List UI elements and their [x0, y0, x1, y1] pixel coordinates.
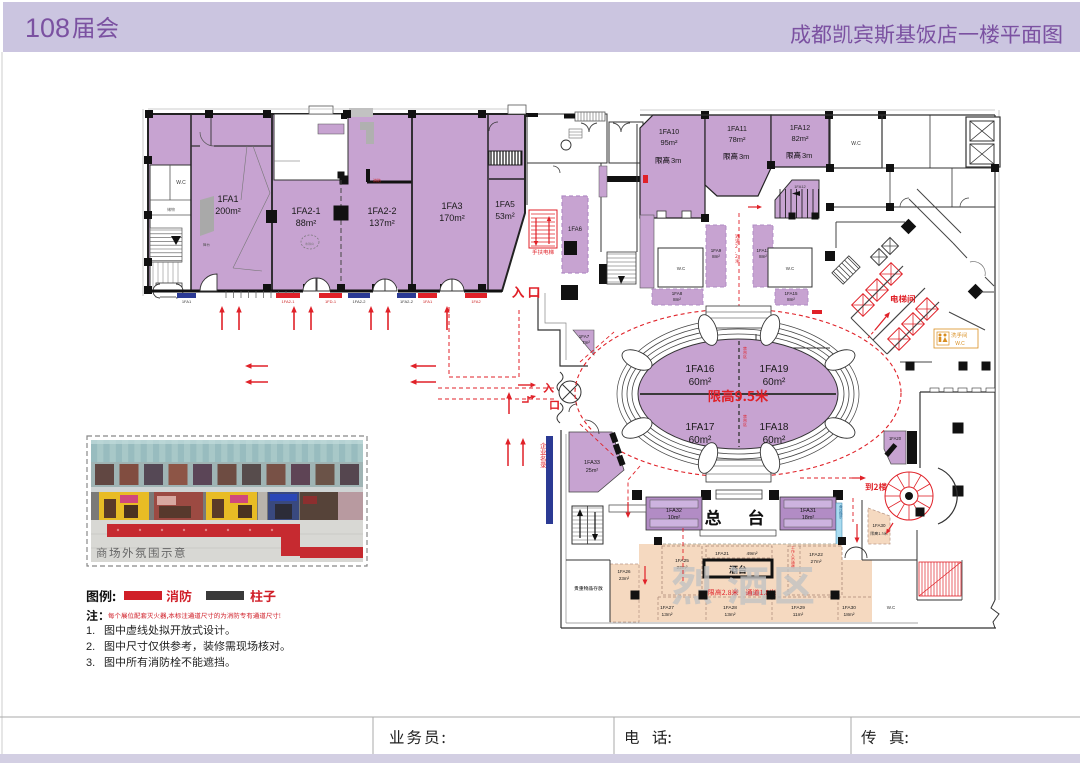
svg-text:1FA33: 1FA33 — [584, 460, 600, 466]
svg-text:60m²: 60m² — [763, 435, 786, 446]
svg-text:3.: 3. — [86, 657, 95, 669]
svg-text:88m²: 88m² — [296, 218, 317, 228]
svg-text:1FA11: 1FA11 — [727, 126, 747, 133]
svg-text:1FD-1: 1FD-1 — [325, 299, 337, 304]
svg-text:1FA1: 1FA1 — [182, 299, 192, 304]
svg-text:10m²: 10m² — [668, 515, 681, 521]
svg-text:1FA2-2: 1FA2-2 — [353, 299, 367, 304]
svg-text:25m²: 25m² — [586, 468, 599, 474]
svg-text:108: 108 — [25, 13, 70, 43]
svg-text:1.: 1. — [86, 625, 95, 637]
svg-text:82m²: 82m² — [791, 134, 809, 143]
svg-text:3m: 3m — [671, 156, 681, 165]
svg-text:1FA1: 1FA1 — [217, 194, 238, 204]
svg-text:2.: 2. — [86, 641, 95, 653]
svg-text:1FA19: 1FA19 — [760, 364, 789, 375]
svg-text:1FA15: 1FA15 — [784, 291, 798, 296]
svg-text:137m²: 137m² — [369, 218, 395, 228]
svg-text:18m²: 18m² — [802, 515, 815, 521]
svg-text:11m²: 11m² — [793, 612, 804, 618]
svg-text:3m: 3m — [739, 152, 749, 161]
svg-text:1FA2-2: 1FA2-2 — [367, 206, 396, 216]
svg-text:1FA2-1: 1FA2-1 — [291, 206, 320, 216]
svg-text:13m²: 13m² — [662, 612, 673, 618]
svg-text:53m²: 53m² — [495, 211, 515, 221]
svg-text:170m²: 170m² — [439, 213, 465, 223]
svg-text:1FA1: 1FA1 — [423, 299, 433, 304]
svg-text:1FA25: 1FA25 — [675, 558, 689, 564]
svg-text:1FA8: 1FA8 — [672, 291, 683, 296]
svg-text:1FA27: 1FA27 — [660, 605, 674, 611]
svg-text:1FA2-1: 1FA2-1 — [282, 299, 296, 304]
svg-text:1FA16: 1FA16 — [686, 364, 715, 375]
svg-text:1FA30: 1FA30 — [842, 605, 856, 611]
svg-text:8m²: 8m² — [673, 297, 681, 302]
svg-text:W.C: W.C — [176, 180, 186, 186]
svg-text:8m²: 8m² — [712, 254, 720, 259]
svg-text:1FA5: 1FA5 — [495, 199, 515, 209]
svg-text:60m²: 60m² — [689, 377, 712, 388]
svg-text:1FA7: 1FA7 — [579, 334, 590, 339]
svg-text:18m²: 18m² — [844, 612, 855, 618]
svg-text:27m²: 27m² — [811, 559, 822, 565]
svg-text:60m²: 60m² — [763, 377, 786, 388]
svg-text:95m²: 95m² — [660, 138, 678, 147]
svg-text:49m²: 49m² — [747, 551, 758, 557]
svg-text:200m²: 200m² — [215, 206, 241, 216]
svg-text:1FA31: 1FA31 — [800, 508, 816, 514]
svg-text:1FA26: 1FA26 — [617, 569, 631, 574]
svg-text:8m²: 8m² — [759, 254, 767, 259]
svg-text:1FA30: 1FA30 — [872, 523, 886, 528]
svg-text:1FA29: 1FA29 — [791, 605, 805, 611]
svg-text:W.C: W.C — [851, 141, 861, 147]
svg-text:1FA17: 1FA17 — [686, 422, 715, 433]
svg-text:1FA10: 1FA10 — [659, 129, 679, 136]
svg-text:1FA28: 1FA28 — [723, 605, 737, 611]
svg-text:1FA2-2: 1FA2-2 — [400, 299, 414, 304]
svg-text:1FA3: 1FA3 — [441, 201, 462, 211]
svg-text:3m: 3m — [802, 151, 812, 160]
svg-text:1FA12: 1FA12 — [790, 125, 810, 132]
svg-text:23m²: 23m² — [619, 576, 630, 581]
svg-text:1FA12: 1FA12 — [794, 184, 806, 189]
svg-text:1FA20: 1FA20 — [889, 436, 902, 441]
svg-text:13m²: 13m² — [725, 612, 736, 618]
svg-text:W.C: W.C — [677, 266, 686, 271]
svg-text:1FA2: 1FA2 — [471, 299, 481, 304]
svg-text:8m²: 8m² — [787, 297, 795, 302]
svg-text:1FA18: 1FA18 — [760, 422, 789, 433]
svg-text:W.C: W.C — [887, 605, 896, 610]
svg-text:1FA32: 1FA32 — [666, 508, 682, 514]
svg-text:7m²: 7m² — [582, 340, 590, 345]
svg-text:1FA21: 1FA21 — [715, 551, 729, 557]
svg-text:1FA9: 1FA9 — [711, 248, 722, 253]
svg-text:1FA22: 1FA22 — [809, 552, 823, 558]
svg-text:W.C: W.C — [786, 266, 795, 271]
svg-text:W.C: W.C — [955, 341, 965, 347]
svg-text:78m²: 78m² — [728, 135, 746, 144]
svg-text:60m²: 60m² — [689, 435, 712, 446]
svg-text:1FA6: 1FA6 — [568, 227, 583, 233]
